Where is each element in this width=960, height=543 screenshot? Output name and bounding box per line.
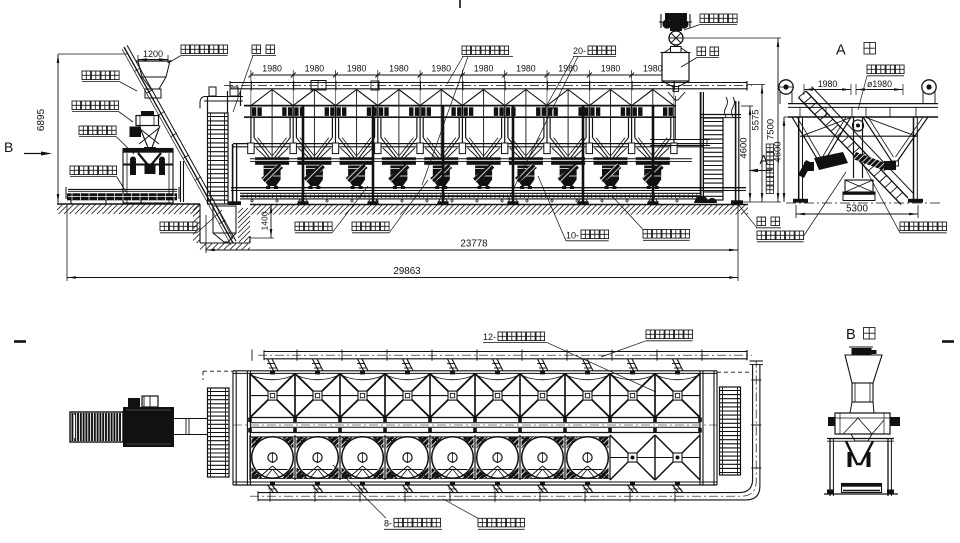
- svg-text:1980: 1980: [431, 64, 451, 74]
- svg-text:1980: 1980: [558, 64, 578, 74]
- svg-text:1980: 1980: [818, 79, 838, 89]
- svg-text:1980: 1980: [516, 64, 536, 74]
- svg-text:1980: 1980: [643, 64, 663, 74]
- svg-text:4600: 4600: [739, 137, 750, 158]
- svg-text:8-: 8-: [384, 519, 392, 529]
- svg-text:1980: 1980: [389, 64, 409, 74]
- svg-text:B: B: [4, 139, 13, 155]
- svg-text:5300: 5300: [846, 204, 868, 215]
- svg-text:10-: 10-: [566, 231, 579, 241]
- svg-text:1980: 1980: [305, 64, 325, 74]
- svg-text:1980: 1980: [474, 64, 494, 74]
- svg-text:ø1980: ø1980: [867, 79, 892, 89]
- svg-text:1980: 1980: [347, 64, 367, 74]
- svg-text:20-: 20-: [573, 46, 586, 56]
- svg-text:29863: 29863: [393, 266, 421, 277]
- svg-text:5575: 5575: [751, 109, 762, 130]
- svg-text:6895: 6895: [36, 108, 47, 131]
- svg-text:1980: 1980: [262, 64, 282, 74]
- svg-text:12-: 12-: [483, 332, 496, 342]
- svg-text:1980: 1980: [601, 64, 621, 74]
- svg-text:4600: 4600: [773, 141, 784, 162]
- svg-text:A: A: [836, 43, 846, 59]
- svg-text:23778: 23778: [460, 239, 488, 250]
- svg-text:7500: 7500: [766, 119, 777, 140]
- svg-text:1200: 1200: [143, 49, 163, 59]
- svg-text:A: A: [760, 153, 769, 167]
- svg-text:B: B: [846, 327, 856, 343]
